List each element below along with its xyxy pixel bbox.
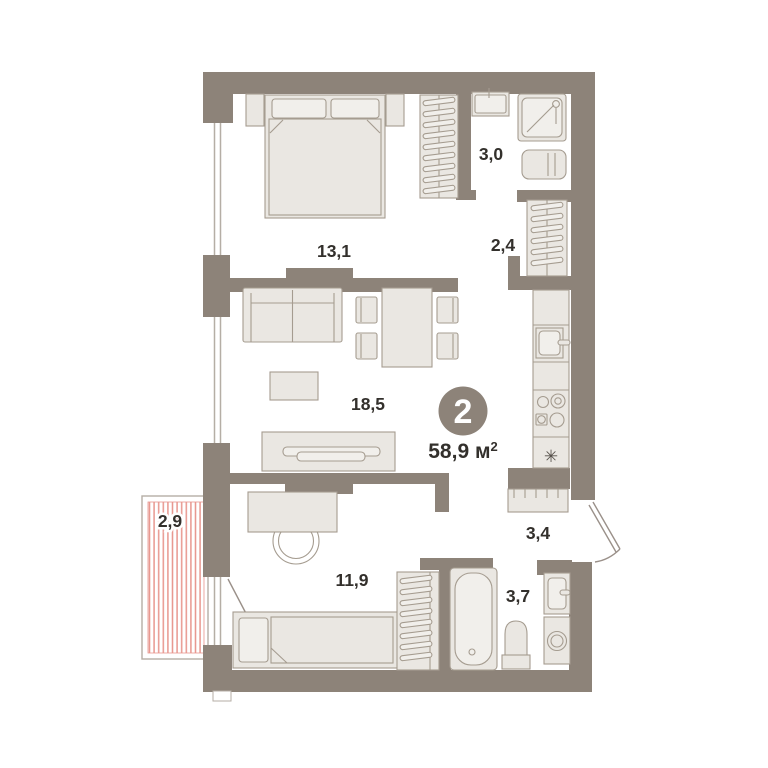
bedroom-second: 11,9 (233, 492, 439, 670)
wardrobe-room: 2,4 (491, 200, 567, 276)
bathtub (450, 568, 497, 670)
bedroom-second-area-label: 11,9 (335, 570, 368, 590)
blanket (271, 617, 393, 663)
shower-room-area-label: 3,0 (479, 144, 504, 164)
coffee-table (270, 372, 318, 400)
nightstand-right (386, 94, 404, 126)
dining-table (356, 288, 458, 367)
kitchen-counter: ✳ (533, 290, 570, 468)
total-area-label: 58,9 м2 (428, 439, 497, 463)
shower-cabin (518, 94, 566, 141)
living-room: 18,5 ✳ 2 (243, 288, 570, 471)
hallway-area-label: 3,4 (526, 523, 551, 543)
entrance-door (589, 502, 620, 562)
sink-shower-room (472, 88, 509, 116)
balcony: 2,9 (142, 496, 208, 659)
wardrobe-bedroom-second (397, 572, 439, 670)
wardrobe-closet (527, 200, 567, 276)
floor-plan: 2,9 (0, 0, 768, 768)
sofa (243, 288, 342, 342)
shower-room: 3,0 (472, 88, 566, 179)
blanket (269, 119, 381, 215)
single-bed (233, 612, 398, 668)
pillow (239, 618, 268, 662)
pillow (272, 99, 326, 118)
washing-machine (544, 617, 570, 664)
chair (437, 333, 458, 359)
tv-stand (262, 432, 395, 471)
nightstand-left (246, 94, 264, 126)
bedroom-main-area-label: 13,1 (317, 241, 351, 261)
fridge-snowflake-icon: ✳ (544, 447, 558, 467)
toilet (502, 621, 530, 669)
living-room-area-label: 18,5 (351, 394, 385, 414)
double-bed (265, 95, 385, 218)
rooms-badge: 2 (439, 387, 488, 436)
bedroom-main: 13,1 (246, 94, 458, 261)
washer-shower-room (522, 150, 566, 179)
sink-bathroom (544, 573, 570, 614)
wardrobe-bedroom-main (420, 95, 458, 198)
desk (248, 492, 337, 532)
bathroom: 3,7 (450, 568, 570, 670)
rooms-count: 2 (454, 393, 473, 431)
hallway: 3,4 (508, 489, 568, 543)
balcony-area-label: 2,9 (158, 511, 183, 531)
bathroom-area-label: 3,7 (506, 586, 530, 606)
pillow (331, 99, 379, 118)
chair (437, 297, 458, 323)
wardrobe-room-area-label: 2,4 (491, 235, 516, 255)
floor-plan-page: 2,9 (0, 0, 768, 768)
chair (356, 297, 377, 323)
chair (356, 333, 377, 359)
coat-rack (508, 489, 568, 512)
